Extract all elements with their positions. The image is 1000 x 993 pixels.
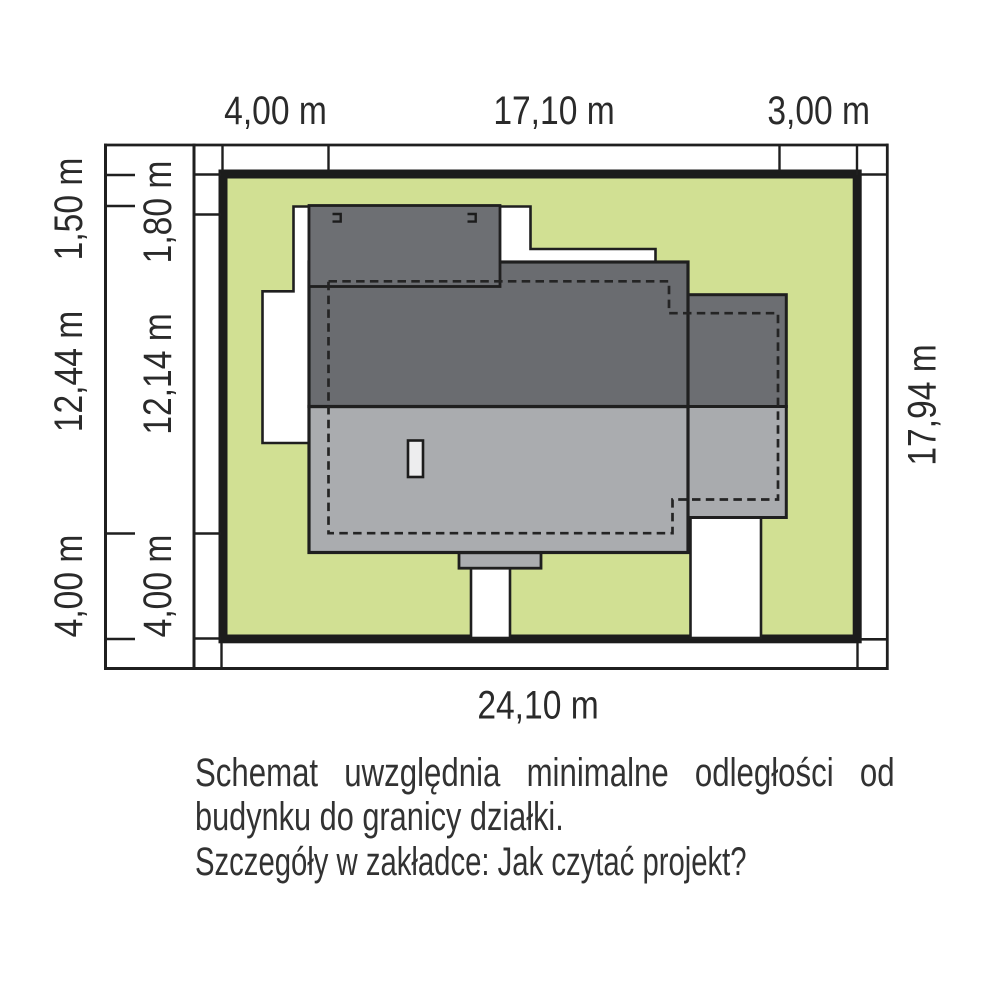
svg-text:12,44 m: 12,44 m: [46, 311, 90, 432]
svg-text:12,14 m: 12,14 m: [135, 313, 179, 434]
svg-text:budynku do granicy działki.: budynku do granicy działki.: [195, 794, 564, 839]
svg-text:17,10 m: 17,10 m: [493, 88, 614, 132]
svg-text:Schemat uwzględnia minimalne o: Schemat uwzględnia minimalne odległości …: [195, 750, 895, 795]
svg-text:4,00 m: 4,00 m: [46, 535, 90, 638]
svg-text:24,10 m: 24,10 m: [477, 683, 598, 727]
svg-text:1,50 m: 1,50 m: [46, 158, 90, 261]
svg-text:3,00 m: 3,00 m: [767, 88, 870, 132]
svg-text:Szczegóły w zakładce: Jak czyt: Szczegóły w zakładce: Jak czytać projekt…: [195, 840, 747, 885]
svg-text:17,94 m: 17,94 m: [900, 344, 944, 465]
svg-text:4,00 m: 4,00 m: [224, 88, 327, 132]
svg-text:4,00 m: 4,00 m: [135, 535, 179, 638]
svg-text:1,80 m: 1,80 m: [135, 161, 179, 264]
